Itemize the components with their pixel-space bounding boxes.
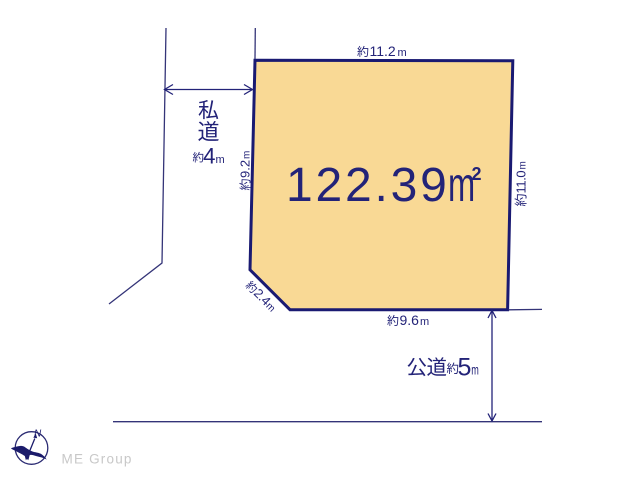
svg-text:ME Group: ME Group	[62, 452, 133, 467]
svg-text:2: 2	[472, 164, 482, 184]
svg-text:9.6: 9.6	[400, 312, 420, 328]
svg-text:m: m	[242, 151, 253, 159]
svg-text:m: m	[420, 316, 429, 328]
svg-text:m: m	[518, 161, 529, 169]
svg-text:m: m	[398, 47, 407, 59]
svg-text:9.2: 9.2	[238, 160, 253, 178]
svg-text:m: m	[471, 361, 479, 378]
svg-text:4: 4	[203, 144, 216, 169]
svg-text:11.0: 11.0	[514, 171, 529, 194]
svg-text:m: m	[216, 154, 225, 166]
svg-text:122.39: 122.39	[286, 159, 450, 212]
svg-text:11.2: 11.2	[370, 43, 396, 59]
svg-text:5: 5	[458, 354, 472, 382]
